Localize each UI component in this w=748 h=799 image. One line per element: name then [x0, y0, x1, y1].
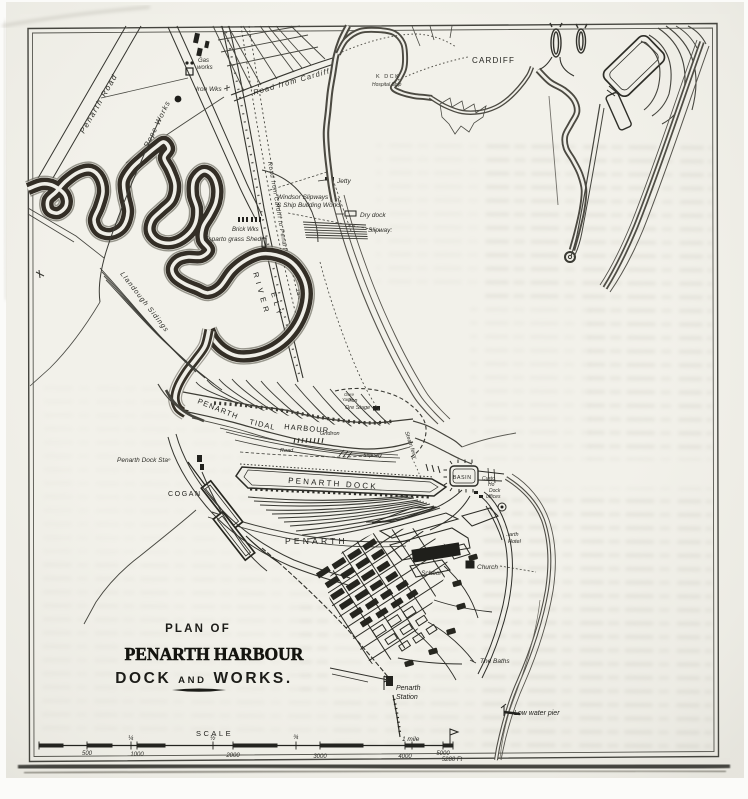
svg-text:Iron: Iron — [348, 398, 357, 404]
svg-text:5280 Ft: 5280 Ft — [442, 757, 463, 763]
svg-text:Church: Church — [477, 564, 498, 571]
svg-text:Brick Wks: Brick Wks — [232, 227, 259, 233]
svg-text:Station: Station — [396, 694, 418, 701]
svg-text:Hospital Ship: Hospital Ship — [372, 82, 402, 88]
svg-text:3000: 3000 — [313, 754, 327, 760]
svg-text:..arth: ..arth — [506, 532, 519, 538]
svg-text:Ore Stage: Ore Stage — [345, 405, 370, 411]
svg-text:Dry dock: Dry dock — [360, 212, 386, 219]
svg-text:PENARTH HARBOUR: PENARTH HARBOUR — [125, 644, 304, 664]
svg-text:Slipway: Slipway — [363, 453, 383, 459]
svg-text:500: 500 — [82, 751, 93, 757]
svg-text:Penarth: Penarth — [396, 685, 421, 692]
svg-text:The Baths: The Baths — [480, 658, 510, 665]
svg-text:PENARTH: PENARTH — [285, 536, 348, 546]
svg-text:Slipway:: Slipway: — [368, 227, 392, 234]
svg-text:BASIN: BASIN — [453, 475, 472, 481]
svg-text:Road: Road — [280, 448, 294, 454]
svg-text:¾: ¾ — [293, 734, 299, 741]
svg-text:Gridiron: Gridiron — [320, 431, 340, 437]
svg-text:Jetty: Jetty — [336, 178, 351, 185]
svg-text:Low water pier: Low water pier — [514, 710, 560, 717]
svg-text:2000: 2000 — [225, 753, 240, 759]
svg-text:School: School — [421, 570, 441, 577]
svg-text:Iron Wks: Iron Wks — [196, 86, 222, 93]
svg-text:K DCK: K DCK — [376, 74, 400, 80]
svg-text:Hotel: Hotel — [508, 539, 522, 545]
svg-text:& Ship Building Works: & Ship Building Works — [277, 202, 342, 209]
svg-text:½: ½ — [210, 734, 216, 742]
svg-text:1 mile: 1 mile — [402, 736, 420, 743]
svg-text:Gas: Gas — [198, 58, 209, 64]
svg-text:Penarth Dock Staⁿ: Penarth Dock Staⁿ — [117, 457, 171, 464]
svg-text:Esparto grass Shed: Esparto grass Shed — [204, 236, 261, 243]
svg-text:PLAN OF: PLAN OF — [165, 623, 231, 635]
svg-text:Windsor Slipways: Windsor Slipways — [277, 194, 329, 201]
svg-text:1000: 1000 — [130, 752, 144, 758]
svg-text:works: works — [197, 65, 213, 71]
svg-text:CARDIFF: CARDIFF — [472, 56, 515, 65]
svg-text:4000: 4000 — [398, 754, 412, 760]
svg-text:¼: ¼ — [128, 735, 134, 742]
